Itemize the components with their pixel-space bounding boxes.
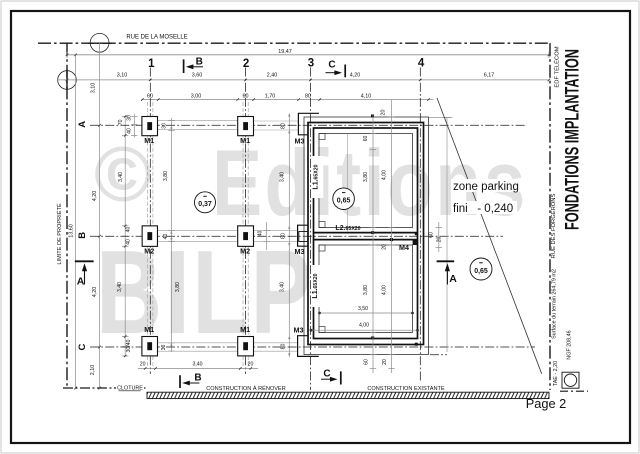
svg-text:60: 60 — [364, 359, 370, 365]
svg-text:A: A — [77, 121, 88, 128]
svg-text:2: 2 — [243, 58, 249, 70]
svg-text:60: 60 — [363, 136, 369, 142]
svg-text:0,65: 0,65 — [337, 198, 351, 205]
svg-text:M3: M3 — [295, 247, 305, 256]
svg-text:80: 80 — [281, 344, 287, 350]
svg-text:zone parking: zone parking — [453, 181, 519, 193]
svg-text:L1.65X20: L1.65X20 — [313, 164, 320, 189]
svg-text:M3: M3 — [294, 326, 304, 335]
svg-text:4,20: 4,20 — [92, 191, 98, 202]
svg-text:4,00: 4,00 — [382, 285, 388, 295]
svg-text:3,80: 3,80 — [163, 171, 169, 181]
svg-text:NGF 208,46: NGF 208,46 — [567, 330, 573, 359]
svg-text:3,40: 3,40 — [118, 172, 124, 182]
svg-text:80: 80 — [281, 123, 287, 129]
svg-text:C: C — [77, 343, 88, 350]
svg-text:3,40: 3,40 — [117, 282, 123, 292]
svg-text:A: A — [77, 276, 85, 288]
svg-text:6,17: 6,17 — [484, 72, 495, 78]
svg-text:4,00: 4,00 — [382, 170, 388, 180]
svg-text:13,60: 13,60 — [68, 224, 74, 238]
svg-text:4,00: 4,00 — [359, 323, 369, 329]
svg-text:A: A — [449, 273, 457, 285]
svg-text:4: 4 — [418, 58, 425, 70]
svg-text:1: 1 — [148, 58, 155, 70]
svg-text:C: C — [328, 59, 335, 70]
svg-text:M1: M1 — [144, 136, 154, 145]
svg-text:20: 20 — [380, 110, 386, 116]
svg-text:4,20: 4,20 — [350, 72, 361, 78]
svg-text:0,37: 0,37 — [198, 201, 212, 208]
svg-text:30: 30 — [126, 115, 132, 121]
svg-text:L1.65X20: L1.65X20 — [312, 273, 319, 298]
svg-text:B: B — [196, 57, 203, 68]
svg-text:70: 70 — [118, 119, 124, 125]
svg-text:4,10: 4,10 — [361, 94, 372, 100]
svg-text:20: 20 — [382, 359, 388, 365]
svg-text:M2: M2 — [240, 247, 250, 256]
svg-text:3,50: 3,50 — [358, 306, 368, 312]
svg-text:2,10: 2,10 — [90, 365, 96, 376]
svg-text:40: 40 — [258, 231, 264, 237]
svg-text:20: 20 — [437, 237, 443, 243]
svg-text:Surface du terrain 264,79 m2: Surface du terrain 264,79 m2 — [552, 269, 558, 339]
svg-text:20: 20 — [382, 244, 388, 250]
svg-text:3,40: 3,40 — [280, 282, 286, 292]
svg-text:M1: M1 — [144, 325, 154, 334]
svg-text:EDF TÉLÉCOM: EDF TÉLÉCOM — [553, 46, 560, 87]
svg-text:1,70: 1,70 — [265, 94, 276, 100]
svg-text:L2.65X20: L2.65X20 — [335, 225, 360, 232]
svg-text:M2: M2 — [144, 247, 154, 256]
svg-text:40: 40 — [125, 227, 131, 233]
svg-text:30: 30 — [161, 345, 167, 351]
svg-text:30/40: 30/40 — [126, 339, 132, 352]
svg-text:M1: M1 — [240, 325, 250, 334]
svg-text:3,80: 3,80 — [363, 172, 369, 182]
svg-text:3,60: 3,60 — [192, 72, 203, 78]
svg-text:LIMITE DE PROPRIÉTÉ: LIMITE DE PROPRIÉTÉ — [56, 203, 63, 264]
svg-text:20: 20 — [248, 362, 254, 368]
svg-text:40: 40 — [126, 128, 132, 134]
svg-text:2,40: 2,40 — [267, 72, 278, 78]
svg-text:3,00: 3,00 — [191, 94, 202, 100]
svg-text:0,65: 0,65 — [474, 268, 488, 275]
svg-text:3,80: 3,80 — [363, 285, 369, 295]
svg-text:40: 40 — [125, 239, 131, 245]
svg-text:M3: M3 — [295, 136, 305, 145]
svg-text:TAE - 2,20: TAE - 2,20 — [553, 361, 559, 386]
svg-text:3,10: 3,10 — [117, 72, 128, 78]
svg-text:3,40: 3,40 — [280, 172, 286, 182]
svg-text:FONDATIONS IMPLANTATION: FONDATIONS IMPLANTATION — [563, 49, 584, 230]
svg-text:30: 30 — [161, 123, 167, 129]
svg-text:60: 60 — [428, 232, 434, 238]
svg-text:RUE DES FORGERONS: RUE DES FORGERONS — [551, 194, 557, 259]
svg-text:M1: M1 — [240, 136, 250, 145]
svg-text:CONSTRUCTION EXISTANTE: CONSTRUCTION EXISTANTE — [367, 386, 445, 392]
svg-text:3,10: 3,10 — [91, 83, 97, 94]
svg-text:fini - 0,240: fini - 0,240 — [453, 203, 513, 215]
svg-text:3: 3 — [308, 58, 314, 70]
svg-text:CONSTRUCTION À RÉNOVER: CONSTRUCTION À RÉNOVER — [206, 385, 286, 392]
svg-text:C: C — [323, 369, 330, 380]
svg-text:3,80: 3,80 — [175, 282, 181, 292]
svg-text:19,47: 19,47 — [278, 49, 292, 55]
svg-text:20: 20 — [140, 362, 146, 368]
svg-text:Page 2: Page 2 — [526, 396, 567, 411]
svg-text:B: B — [77, 232, 88, 239]
svg-text:RUE DE LA MOSELLE: RUE DE LA MOSELLE — [126, 35, 187, 41]
svg-text:M4: M4 — [399, 243, 409, 252]
svg-text:80: 80 — [305, 94, 311, 100]
svg-text:4,20: 4,20 — [92, 287, 98, 298]
svg-text:3,40: 3,40 — [192, 362, 202, 368]
svg-text:B: B — [194, 373, 201, 384]
